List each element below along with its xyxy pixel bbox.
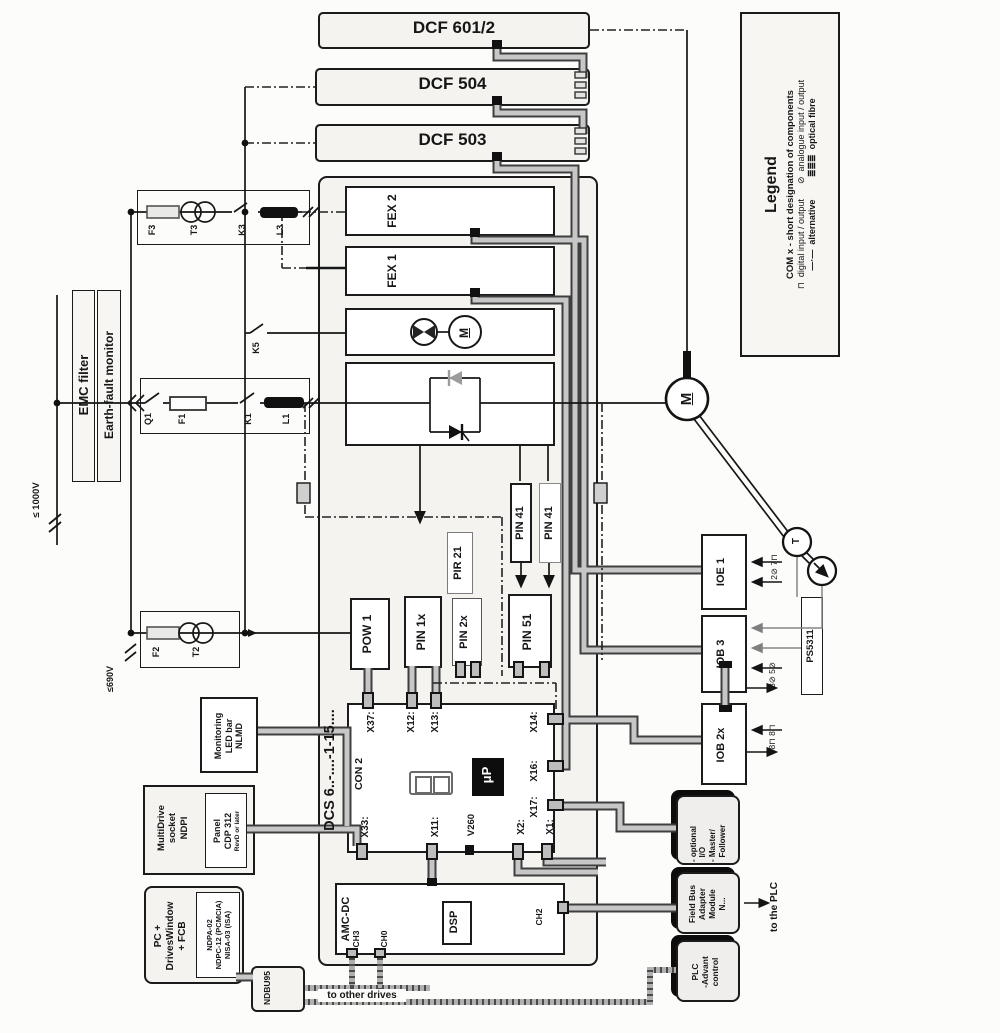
- dcs600-system-diagram: DCF 601/2 DCF 504 DCF 503 Legend COM x -…: [0, 0, 1000, 1033]
- x37-label: X37:: [366, 707, 378, 737]
- legend-alt-line: —·— alternative ≣≣≣ optical fibre: [807, 98, 818, 270]
- f2-label: F2: [150, 640, 162, 664]
- dcf504-label: DCF 504: [315, 74, 590, 94]
- f1-label: F1: [176, 406, 188, 432]
- x1-label: X1:: [545, 812, 557, 842]
- ch2-label: CH2: [534, 906, 544, 928]
- drive-model-label: DCS 6..-....-1-15....: [321, 688, 341, 852]
- iob3-channels-label: 3⊘ 5⊘: [766, 650, 778, 700]
- q1-label: Q1: [142, 406, 154, 432]
- dcf6012-label: DCF 601/2: [318, 18, 590, 38]
- t3-label: T3: [188, 218, 200, 242]
- earth-fault-label: Earth-fault monitor: [98, 292, 120, 478]
- nlmd-line2: LED bar: [224, 719, 235, 754]
- pc-tools-block: PC + DrivesWindow + FCB: [150, 892, 192, 980]
- dcf503-label: DCF 503: [315, 130, 590, 150]
- panel-line1: Panel: [212, 819, 223, 843]
- ndpi-line3: NDPI: [179, 817, 190, 840]
- pc-line2: DrivesWindow: [165, 902, 177, 971]
- panel-line3: RevD or later: [234, 811, 242, 851]
- panel-block: Panel CDP 312 RevD or later: [208, 796, 246, 866]
- nlmd-line3: NLMD: [234, 723, 245, 749]
- dsp-label: DSP: [447, 905, 463, 939]
- pow1-label: POW 1: [357, 603, 377, 665]
- iob2x-channels-label: 8⊓ 8⊓: [766, 712, 778, 762]
- ioe1-channels-label: 2⊘ 7⊓: [768, 540, 780, 594]
- ps5311-label: PS5311: [803, 603, 819, 689]
- pc-cards-block: NDPA-02 NDPC-12 (PCMCIA) NISA-03 (ISA): [198, 894, 238, 976]
- pin41b-label: PIN 41: [541, 487, 558, 559]
- ndpi-line2: socket: [167, 813, 178, 843]
- optio-line4: Follower: [718, 825, 728, 862]
- k5-label: K5: [250, 336, 262, 360]
- to-plc-label: to the PLC: [768, 878, 782, 936]
- x14-label: X14:: [529, 707, 541, 737]
- v260-label: V260: [466, 808, 478, 842]
- optio-line2: I/O: [698, 847, 708, 862]
- x12-label: X12:: [406, 707, 418, 737]
- ndbu-label: NDBU95: [261, 969, 274, 1007]
- encoder-t-label: T: [791, 534, 803, 548]
- plc-line2: -Advant: [700, 956, 710, 988]
- k3-label: K3: [236, 218, 248, 242]
- l1-label: L1: [280, 406, 292, 432]
- v690-label: ≤690V: [104, 654, 117, 704]
- plc-block: PLC -Advant control: [682, 944, 728, 1000]
- ndpi-block: MultiDrive socket NDPI: [148, 788, 198, 868]
- ioe1-label: IOE 1: [713, 545, 731, 599]
- fan-motor-label: M: [457, 325, 472, 341]
- con2-label: CON 2: [352, 753, 366, 795]
- fex1-label: FEX 1: [384, 250, 400, 292]
- legend-com-line: COM x - short designation of components: [785, 90, 796, 279]
- pin41a-label: PIN 41: [512, 487, 529, 559]
- optio-line1: - optional: [689, 826, 699, 862]
- fieldbus-line1: Field Bus: [687, 885, 697, 923]
- ch3-label: CH3: [351, 928, 361, 950]
- plc-line3: control: [710, 958, 720, 987]
- v1000-label: ≤ 1000V: [30, 467, 44, 533]
- pc-line3: + FCB: [177, 921, 189, 950]
- fieldbus-block: Field Bus Adapter Module N...: [682, 876, 732, 932]
- fieldbus-line4: N...: [717, 897, 727, 910]
- pin2x-label: PIN 2x: [456, 603, 474, 661]
- main-motor-label: M: [678, 389, 696, 409]
- l3-label: L3: [274, 218, 286, 242]
- pin1x-label: PIN 1x: [411, 601, 431, 663]
- ch0-label: CH0: [379, 928, 389, 950]
- nlmd-line1: Monitoring: [213, 713, 224, 760]
- x13-label: X13:: [430, 707, 442, 737]
- x2-label: X2:: [516, 812, 528, 842]
- k1-label: K1: [242, 406, 254, 432]
- iob2x-label: IOB 2x: [713, 718, 731, 772]
- plc-line1: PLC: [690, 964, 700, 981]
- fieldbus-line3: Module: [707, 889, 717, 919]
- x17-label: X17:: [529, 792, 541, 822]
- emc-filter-label: EMC filter: [74, 292, 94, 478]
- panel-line2: CDP 312: [223, 813, 234, 849]
- x11-label: X11:: [430, 812, 442, 842]
- labels: DCF 601/2 DCF 504 DCF 503 Legend COM x -…: [0, 0, 1000, 1033]
- x16-label: X16:: [529, 756, 541, 786]
- iob3-label: IOB 3: [713, 627, 731, 681]
- x33-label: X33:: [360, 812, 372, 842]
- card-nisa: NISA-03 (ISA): [223, 911, 232, 959]
- card-ndpa: NDPA-02: [205, 919, 214, 951]
- fieldbus-line2: Adapter: [697, 888, 707, 920]
- f3-label: F3: [146, 218, 158, 242]
- card-ndpc: NDPC-12 (PCMCIA): [214, 901, 223, 970]
- pc-line1: PC +: [153, 925, 165, 948]
- legend-block: Legend COM x - short designation of comp…: [744, 16, 836, 353]
- to-other-drives-label: to other drives: [318, 989, 406, 1002]
- fex2-label: FEX 2: [384, 190, 400, 232]
- nlmd-block: Monitoring LED bar NLMD: [204, 703, 254, 769]
- ndpi-line1: MultiDrive: [156, 805, 167, 851]
- legend-title: Legend: [762, 156, 781, 213]
- pir21-label: PIR 21: [450, 535, 468, 591]
- t2-label: T2: [190, 640, 202, 664]
- legend-io-line: ⊓ digital input / output ⊘ analogue inpu…: [796, 80, 807, 289]
- microprocessor-label: μP: [477, 759, 497, 791]
- optio-line3: - Master/: [708, 829, 718, 862]
- optional-io-block: - optional I/O - Master/ Follower: [682, 800, 734, 862]
- pin51-label: PIN 51: [517, 601, 537, 663]
